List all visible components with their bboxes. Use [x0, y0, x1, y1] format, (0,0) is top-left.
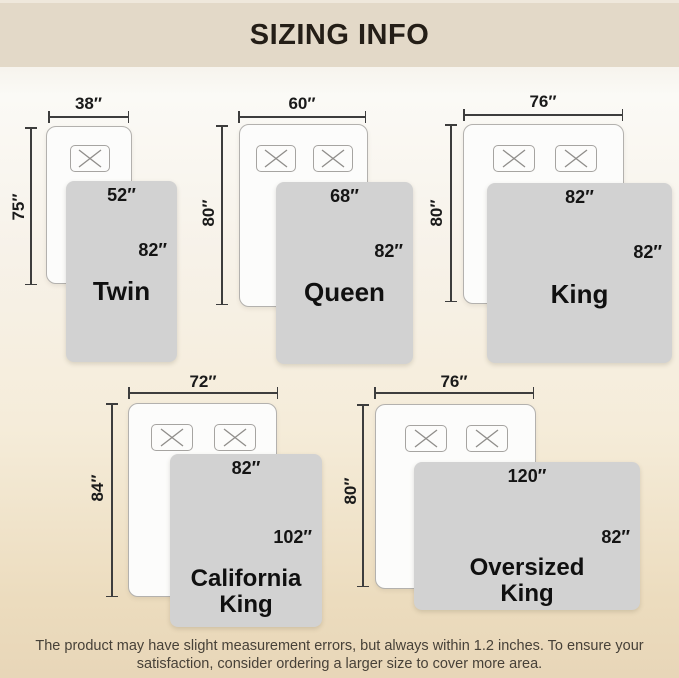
pillow-icon [555, 145, 597, 172]
pillow-icon [151, 424, 193, 451]
disclaimer-line-1: The product may have slight measurement … [0, 638, 679, 656]
mattress-length-label: 75″ [8, 177, 30, 237]
mattress-length-measure-line [362, 404, 364, 587]
blanket-length-label: 82″ [374, 240, 403, 262]
size-name-line: Queen [276, 278, 413, 306]
mattress-length-measure-line [450, 124, 452, 302]
disclaimer-text: The product may have slight measurement … [0, 638, 679, 673]
pillow-x-icon [257, 146, 295, 171]
mattress-width-label: 38″ [48, 93, 129, 115]
size-name-label: Oversized King [414, 555, 640, 607]
blanket-width-label: 52″ [66, 184, 177, 206]
header-bar: SIZING INFO [0, 0, 679, 67]
pillow-icon [313, 145, 353, 172]
pillow-x-icon [556, 146, 596, 171]
size-name-line: King [170, 592, 322, 618]
pillow-x-icon [406, 426, 446, 451]
blanket-overlay: 82″ 102″ California King [170, 454, 322, 627]
mattress-length-measure-line [221, 125, 223, 305]
size-name-label: King [487, 280, 672, 308]
blanket-overlay: 82″ 82″ King [487, 183, 672, 363]
mattress-width-label: 76″ [463, 91, 623, 113]
pillow-x-icon [215, 425, 255, 450]
mattress-width-measure-line [238, 116, 366, 118]
pillow-icon [405, 425, 447, 452]
blanket-length-label: 82″ [601, 526, 630, 548]
pillow-icon [70, 145, 110, 172]
blanket-overlay: 68″ 82″ Queen [276, 182, 413, 364]
size-name-line: King [487, 280, 672, 308]
blanket-overlay: 120″ 82″ Oversized King [414, 462, 640, 610]
disclaimer-line-2: satisfaction, consider ordering a larger… [0, 656, 679, 674]
blanket-overlay: 52″ 82″ Twin [66, 181, 177, 362]
pillow-x-icon [152, 425, 192, 450]
page-title: SIZING INFO [250, 19, 430, 52]
mattress-length-label: 80″ [426, 183, 448, 243]
pillow-icon [493, 145, 535, 172]
pillow-icon [466, 425, 508, 452]
pillow-icon [256, 145, 296, 172]
size-name-line: Oversized [414, 555, 640, 581]
mattress-width-label: 72″ [128, 371, 278, 393]
mattress-length-measure-line [111, 403, 113, 597]
size-name-label: Queen [276, 278, 413, 306]
mattress-width-measure-line [48, 116, 129, 118]
blanket-length-label: 82″ [138, 239, 167, 261]
mattress-length-label: 84″ [87, 458, 109, 518]
blanket-width-label: 120″ [414, 465, 640, 487]
blanket-width-label: 68″ [276, 185, 413, 207]
pillow-icon [214, 424, 256, 451]
mattress-width-measure-line [128, 392, 278, 394]
mattress-length-label: 80″ [198, 183, 220, 243]
pillow-x-icon [494, 146, 534, 171]
size-name-line: California [170, 566, 322, 592]
mattress-length-measure-line [30, 127, 32, 285]
blanket-length-label: 82″ [633, 241, 662, 263]
mattress-width-label: 76″ [374, 371, 534, 393]
blanket-width-label: 82″ [487, 186, 672, 208]
mattress-width-label: 60″ [238, 93, 366, 115]
mattress-width-measure-line [463, 114, 623, 116]
pillow-x-icon [314, 146, 352, 171]
pillow-x-icon [467, 426, 507, 451]
blanket-width-label: 82″ [170, 457, 322, 479]
size-name-label: Twin [66, 277, 177, 305]
blanket-length-label: 102″ [273, 526, 312, 548]
size-name-label: California King [170, 566, 322, 618]
pillow-x-icon [71, 146, 109, 171]
size-name-line: King [414, 581, 640, 607]
sizing-info-page: SIZING INFO 38″ 75″ 52″ 82″ Twin 60″ 80″ [0, 0, 679, 678]
size-name-line: Twin [66, 277, 177, 305]
mattress-width-measure-line [374, 392, 534, 394]
mattress-length-label: 80″ [340, 461, 362, 521]
